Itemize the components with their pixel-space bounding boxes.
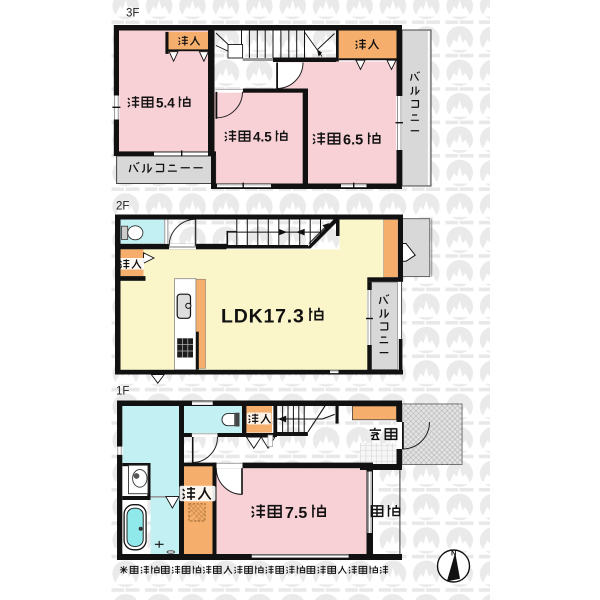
svg-text:2F: 2F (116, 201, 129, 213)
svg-text:4.5: 4.5 (253, 130, 272, 145)
svg-text:7.5: 7.5 (285, 505, 307, 522)
svg-text:5.4: 5.4 (156, 96, 175, 111)
svg-text:N: N (451, 549, 456, 558)
svg-text:LDK17.3: LDK17.3 (221, 306, 305, 328)
svg-text:6.5: 6.5 (343, 133, 363, 149)
svg-text:3F: 3F (126, 8, 139, 20)
svg-text:1F: 1F (116, 386, 129, 398)
